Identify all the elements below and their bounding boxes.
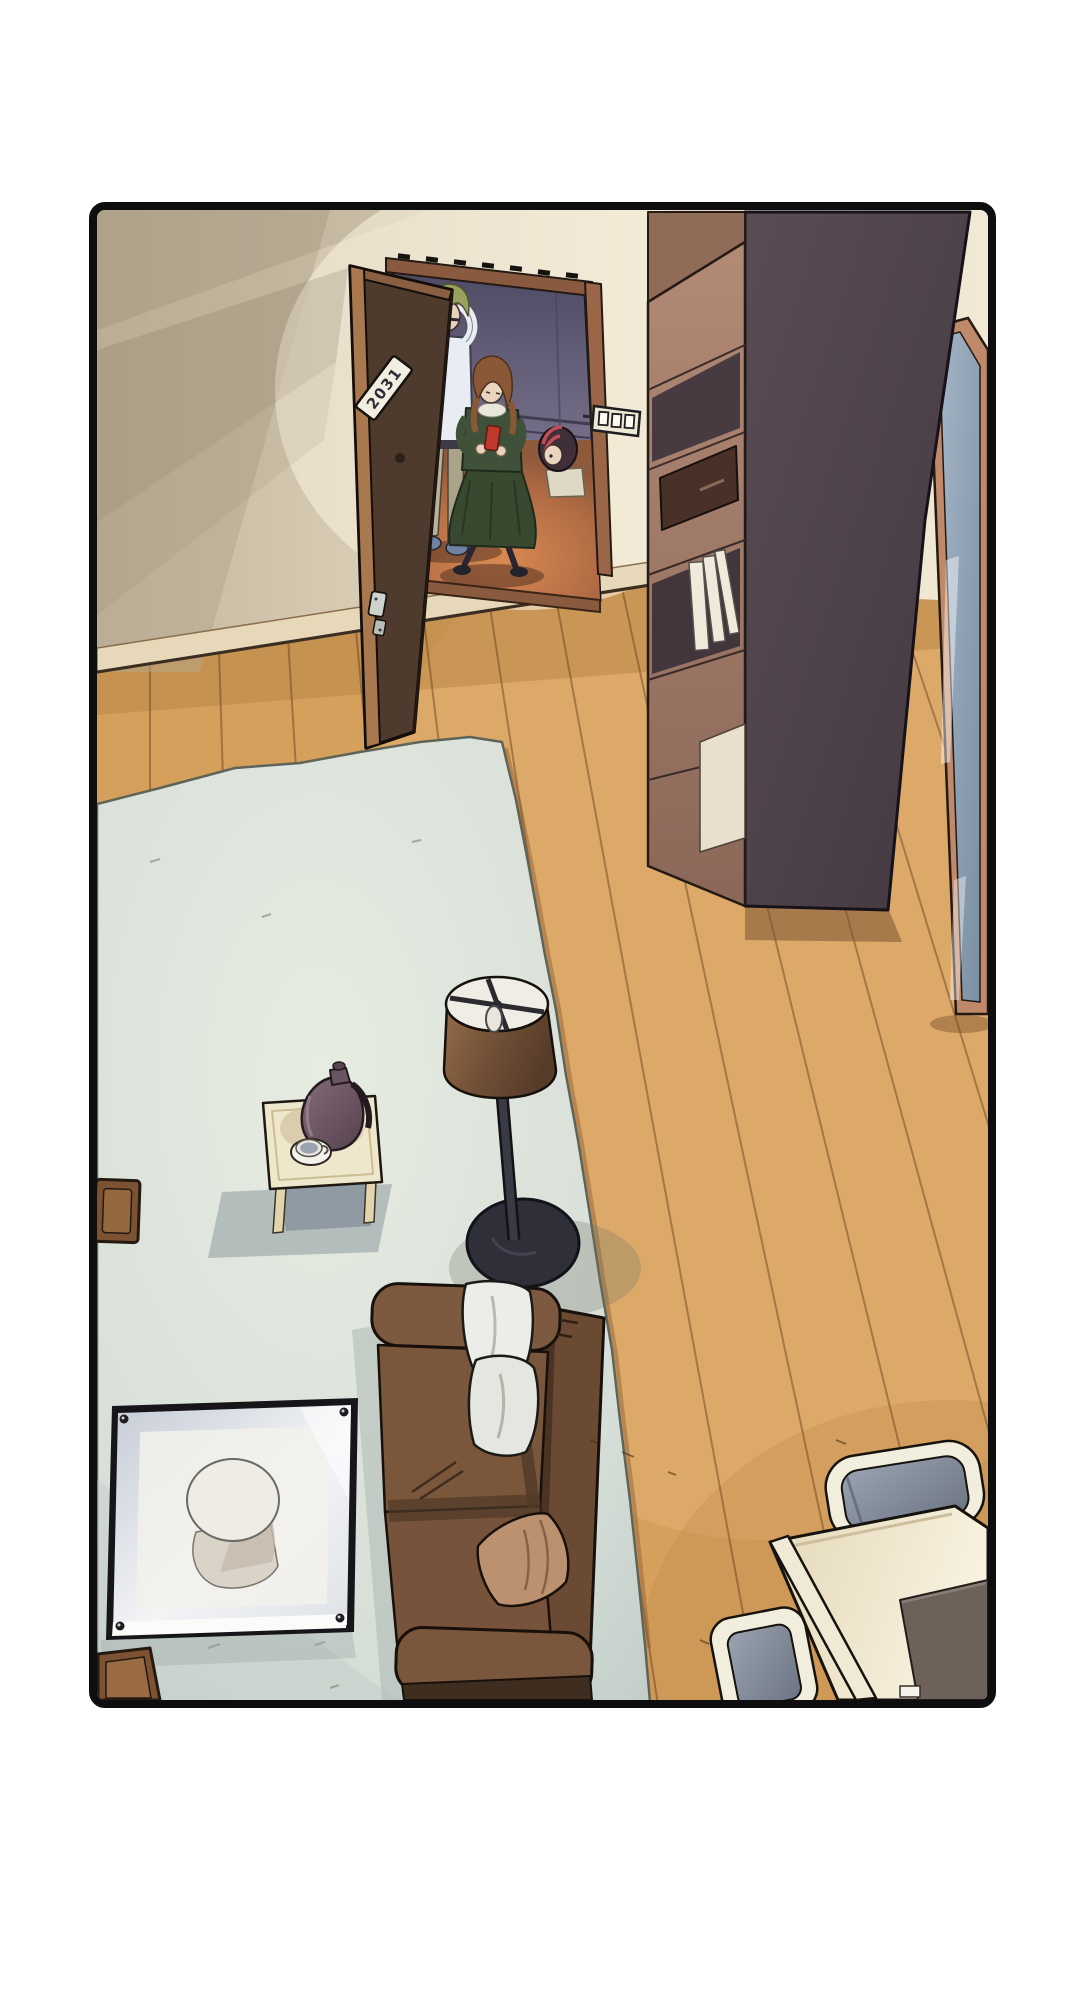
woman-collar (478, 403, 506, 417)
sofa (352, 1281, 604, 1700)
table-leg (273, 1188, 286, 1233)
phone (484, 425, 500, 451)
storage-box (97, 1179, 140, 1242)
comic-panel: 2031 (89, 202, 996, 1708)
table-leg (364, 1181, 376, 1223)
page-background: 2031 (0, 0, 1080, 2016)
lamp-base (467, 1199, 579, 1287)
white-cushions (463, 1281, 539, 1456)
scene: 2031 (97, 210, 988, 1700)
glass-coffee-table (100, 1398, 358, 1668)
chair-cushion (726, 1623, 803, 1700)
lamp-bulb (486, 1006, 502, 1032)
glass-cylinder (187, 1459, 279, 1588)
wooden-stool (98, 1648, 160, 1700)
small-card (900, 1686, 920, 1697)
door-knob (395, 453, 405, 463)
teacup (291, 1139, 331, 1165)
child-face (544, 445, 562, 465)
cabinet-panel (700, 724, 745, 852)
